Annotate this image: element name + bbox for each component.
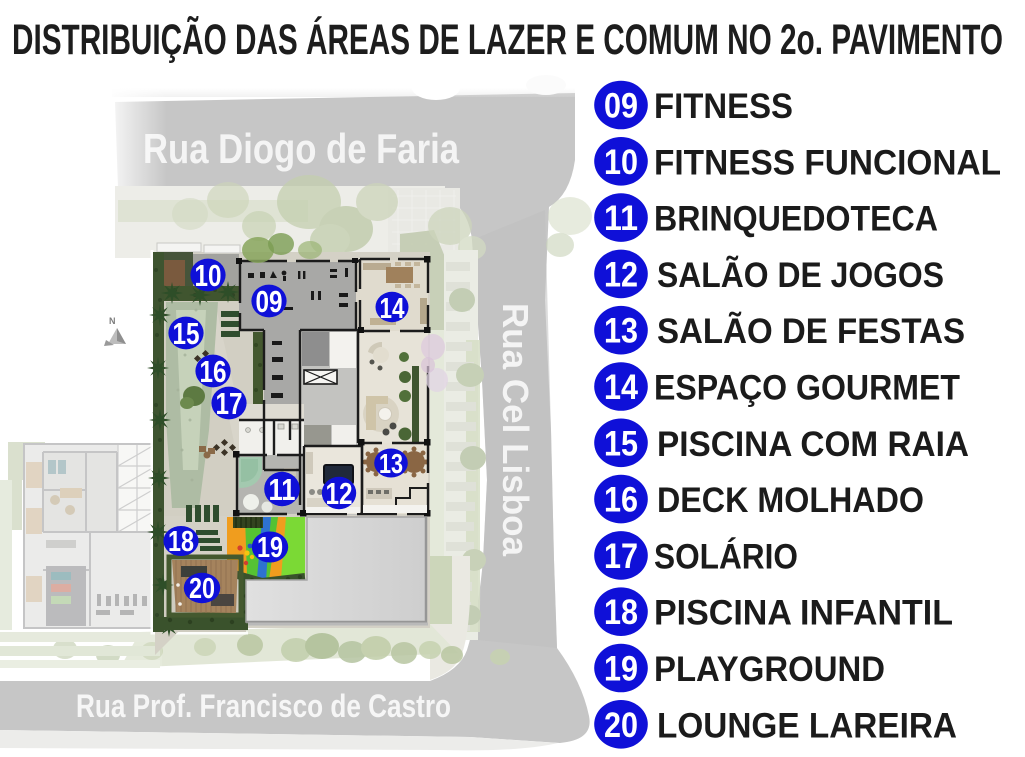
svg-text:Rua Prof. Francisco de Castro: Rua Prof. Francisco de Castro (76, 688, 451, 724)
svg-text:Rua Cel Lisboa: Rua Cel Lisboa (495, 303, 536, 557)
svg-text:14: 14 (380, 293, 405, 325)
svg-text:FITNESS: FITNESS (654, 86, 793, 126)
svg-text:15: 15 (604, 424, 638, 463)
svg-text:18: 18 (604, 593, 638, 632)
svg-text:13: 13 (604, 312, 638, 351)
svg-text:10: 10 (195, 258, 222, 293)
svg-text:16: 16 (200, 354, 227, 389)
svg-text:ESPAÇO GOURMET: ESPAÇO GOURMET (654, 368, 960, 408)
svg-text:19: 19 (604, 650, 638, 689)
svg-text:16: 16 (604, 481, 638, 520)
svg-text:12: 12 (604, 255, 638, 294)
svg-text:N: N (109, 316, 116, 326)
svg-text:PISCINA INFANTIL: PISCINA INFANTIL (654, 593, 953, 633)
svg-text:20: 20 (604, 706, 638, 745)
svg-text:13: 13 (379, 448, 403, 479)
svg-text:18: 18 (168, 526, 194, 558)
svg-text:DISTRIBUIÇÃO DAS ÁREAS DE LAZE: DISTRIBUIÇÃO DAS ÁREAS DE LAZER E COMUM … (12, 16, 1003, 64)
svg-text:19: 19 (257, 532, 283, 564)
svg-text:20: 20 (189, 573, 215, 605)
svg-text:11: 11 (269, 472, 296, 507)
svg-text:BRINQUEDOTECA: BRINQUEDOTECA (654, 199, 938, 239)
svg-text:SALÃO DE JOGOS: SALÃO DE JOGOS (657, 255, 944, 295)
svg-text:SALÃO DE FESTAS: SALÃO DE FESTAS (657, 311, 965, 351)
svg-text:11: 11 (604, 199, 638, 238)
svg-text:Rua Diogo de Faria: Rua Diogo de Faria (143, 125, 460, 172)
svg-text:14: 14 (604, 368, 638, 407)
svg-text:15: 15 (173, 316, 200, 351)
svg-text:SOLÁRIO: SOLÁRIO (654, 536, 798, 576)
svg-text:10: 10 (604, 143, 638, 182)
svg-text:12: 12 (326, 476, 353, 511)
svg-text:PLAYGROUND: PLAYGROUND (654, 649, 885, 689)
svg-text:FITNESS FUNCIONAL: FITNESS FUNCIONAL (654, 142, 1001, 182)
svg-text:DECK MOLHADO: DECK MOLHADO (657, 480, 924, 520)
svg-text:PISCINA COM RAIA: PISCINA COM RAIA (657, 424, 969, 464)
svg-text:17: 17 (216, 386, 243, 421)
svg-text:09: 09 (256, 284, 283, 319)
svg-text:17: 17 (604, 537, 638, 576)
svg-text:LOUNGE LAREIRA: LOUNGE LAREIRA (657, 705, 957, 745)
svg-text:09: 09 (604, 87, 638, 126)
